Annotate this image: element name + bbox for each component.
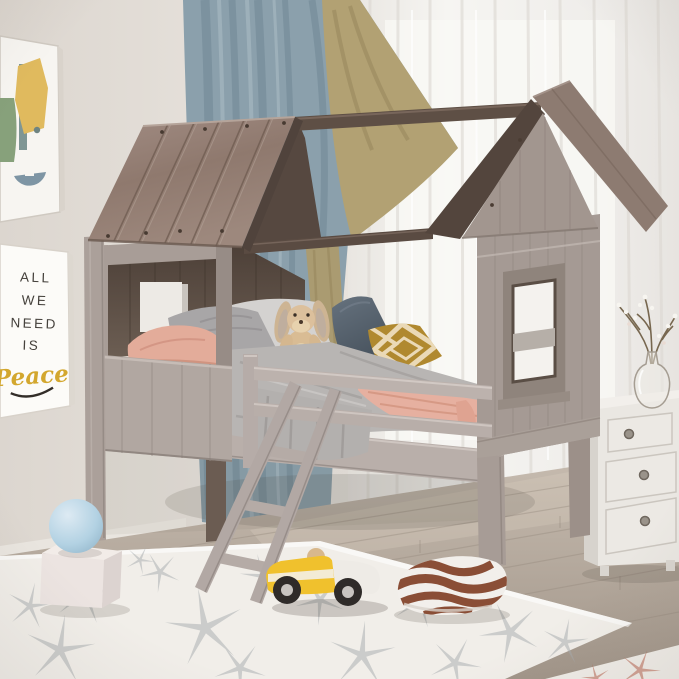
bedroom-product-photo: ALL WE NEED IS Peace: [0, 0, 679, 679]
photo-vignette: [0, 0, 679, 679]
photo-canvas: ALL WE NEED IS Peace: [0, 0, 679, 679]
